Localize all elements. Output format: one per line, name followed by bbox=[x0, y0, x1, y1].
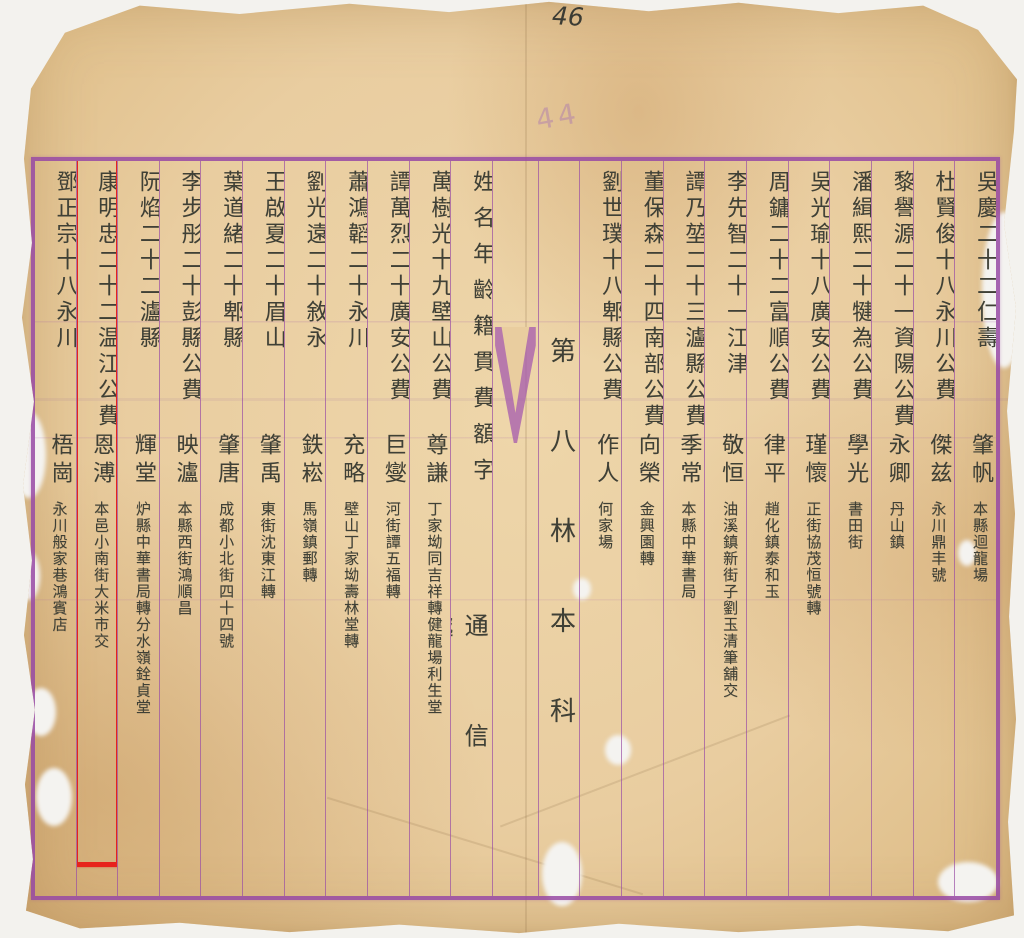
roster-column: 康明忠二十二温江公費 恩溥本邑小南街大米市交 bbox=[76, 161, 118, 896]
entry-contact-block: 永卿丹山鎮 bbox=[872, 433, 913, 894]
roster-column: 蕭鴻韜二十永川 充略壁山丁家坳壽林堂轉 bbox=[325, 161, 367, 896]
entry-address: 趙化鎮泰和玉 bbox=[763, 501, 781, 600]
roster-column: 鄧正宗十八永川 梧崗永川般家巷鴻賓店 bbox=[35, 161, 76, 896]
entry-address: 金興園轉 bbox=[638, 501, 656, 567]
entry-address: 本縣西街鴻順昌 bbox=[175, 501, 193, 617]
header-fields-label: 姓名年齡籍貫費額字 bbox=[469, 170, 492, 494]
entry-style-name: 映瀘 bbox=[172, 433, 197, 489]
entry-contact-block: 傑兹永川鼎丰號 bbox=[914, 433, 955, 894]
roster-column: 阮焰二十二瀘縣 輝堂炉縣中華書局轉分水嶺銓貞堂 bbox=[117, 161, 159, 896]
fold-fishtail-mark bbox=[495, 327, 536, 443]
entry-name-age-origin: 鄧正宗十八永川 bbox=[53, 170, 76, 352]
entry-contact-block: 肇唐成都小北街四十四號 bbox=[201, 433, 242, 894]
roster-column: 周鏞二十二富順公費 律平趙化鎮泰和玉 bbox=[746, 161, 788, 896]
roster-column: 譚乃堃二十三瀘縣公費 季常本縣中華書局 bbox=[663, 161, 705, 896]
entry-address: 東街沈東江轉 bbox=[259, 501, 277, 600]
entry-name-age-origin: 劉世璞十八郫縣公費 bbox=[598, 170, 621, 404]
entry-address: 本縣迴龍場 bbox=[971, 501, 989, 584]
entry-contact-block: 向榮金興園轉 bbox=[622, 433, 663, 894]
entry-contact-block: 肇禹東街沈東江轉 bbox=[243, 433, 284, 894]
entry-style-name: 輝堂 bbox=[131, 433, 156, 489]
entry-address: 正街協茂恒號轉 bbox=[804, 501, 822, 617]
entry-style-name: 肇唐 bbox=[214, 433, 239, 489]
entry-contact-block: 學光書田街 bbox=[830, 433, 871, 894]
entry-style-name: 季常 bbox=[676, 433, 701, 489]
entry-style-name: 學光 bbox=[843, 433, 868, 489]
center-fold-column bbox=[492, 161, 538, 896]
entry-name-age-origin: 王啟夏二十眉山 bbox=[261, 170, 284, 352]
entry-name-age-origin: 黎譽源二十一資陽公費 bbox=[890, 170, 913, 430]
handwritten-page-number: 46 bbox=[551, 1, 584, 32]
entry-style-name: 恩溥 bbox=[89, 433, 114, 489]
entry-address: 本縣中華書局 bbox=[679, 501, 697, 600]
entry-contact-block: 瑾懷正街協茂恒號轉 bbox=[789, 433, 830, 894]
entry-name-age-origin: 葉道緒二十郫縣 bbox=[219, 170, 242, 352]
entry-name-age-origin: 潘緝熙二十犍為公費 bbox=[848, 170, 871, 404]
entry-contact-block: 鉄崧馬嶺鎮郵轉 bbox=[285, 433, 326, 894]
entry-name-age-origin: 董保森二十四南部公費 bbox=[640, 170, 663, 430]
entry-contact-block: 作人何家場 bbox=[580, 433, 621, 894]
roster-column: 董保森二十四南部公費 向榮金興園轉 bbox=[621, 161, 663, 896]
entry-contact-block: 輝堂炉縣中華書局轉分水嶺銓貞堂 bbox=[118, 433, 159, 894]
entry-style-name: 梧崗 bbox=[48, 433, 73, 489]
entry-name-age-origin: 萬樹光十九壁山公費 bbox=[427, 170, 450, 404]
roster-column: 王啟夏二十眉山 肇禹東街沈東江轉 bbox=[242, 161, 284, 896]
entry-contact-block: 季常本縣中華書局 bbox=[664, 433, 705, 894]
roster-column: 李先智二十一江津 敬恒油溪鎮新街子劉玉清筆舖交 bbox=[704, 161, 746, 896]
entry-style-name: 肇禹 bbox=[256, 433, 281, 489]
roster-column: 葉道緒二十郫縣 肇唐成都小北街四十四號 bbox=[200, 161, 242, 896]
entry-address: 書田街 bbox=[846, 501, 864, 551]
entry-address: 成都小北街四十四號 bbox=[217, 501, 235, 650]
entry-style-name: 永卿 bbox=[885, 433, 910, 489]
entry-name-age-origin: 蕭鴻韜二十永川 bbox=[344, 170, 367, 352]
entry-contact-block: 律平趙化鎮泰和玉 bbox=[747, 433, 788, 894]
entry-contact-block: 映瀘本縣西街鴻順昌 bbox=[160, 433, 201, 894]
entry-address: 永川般家巷鴻賓店 bbox=[51, 501, 69, 633]
entry-contact-block: 充略壁山丁家坳壽林堂轉 bbox=[326, 433, 367, 894]
entry-style-name: 傑兹 bbox=[926, 433, 951, 489]
entry-name-age-origin: 阮焰二十二瀘縣 bbox=[136, 170, 159, 352]
entry-style-name: 作人 bbox=[593, 433, 618, 489]
entry-style-name: 律平 bbox=[760, 433, 785, 489]
entry-address: 何家場 bbox=[596, 501, 614, 551]
entry-name-age-origin: 李先智二十一江津 bbox=[723, 170, 746, 378]
entry-style-name: 尊謙 bbox=[422, 433, 447, 489]
roster-column: 劉光遠二十敘永 鉄崧馬嶺鎮郵轉 bbox=[284, 161, 326, 896]
roster-column: 吳光瑜十八廣安公費 瑾懷正街協茂恒號轉 bbox=[788, 161, 830, 896]
roster-grid: 吳慶二十二仁壽 肇帆本縣迴龍場 杜賢俊十八永川公費 傑兹永川鼎丰號 黎譽源二十一… bbox=[35, 161, 996, 896]
roster-column: 潘緝熙二十犍為公費 學光書田街 bbox=[829, 161, 871, 896]
entry-address: 炉縣中華書局轉分水嶺銓貞堂 bbox=[134, 501, 152, 716]
entry-contact-block: 巨燮河街譚五福轉 bbox=[368, 433, 409, 894]
entry-address: 油溪鎮新街子劉玉清筆舖交 bbox=[721, 501, 739, 699]
entry-name-age-origin: 周鏞二十二富順公費 bbox=[765, 170, 788, 404]
roster-column: 劉世璞十八郫縣公費 作人何家場 bbox=[579, 161, 621, 896]
entry-name-age-origin: 譚萬烈二十廣安公費 bbox=[386, 170, 409, 404]
entry-contact-block: 恩溥本邑小南街大米市交 bbox=[77, 433, 118, 894]
roster-column: 吳慶二十二仁壽 肇帆本縣迴龍場 bbox=[954, 161, 996, 896]
entry-style-name: 肇帆 bbox=[968, 433, 993, 489]
entry-contact-block: 敬恒油溪鎮新街子劉玉清筆舖交 bbox=[705, 433, 746, 894]
entry-name-age-origin: 劉光遠二十敘永 bbox=[302, 170, 325, 352]
roster-column: 黎譽源二十一資陽公費 永卿丹山鎮 bbox=[871, 161, 913, 896]
entry-address: 河街譚五福轉 bbox=[384, 501, 402, 600]
entry-name-age-origin: 康明忠二十二温江公費 bbox=[94, 170, 117, 430]
entry-address: 本邑小南街大米市交 bbox=[92, 501, 110, 650]
entry-style-name: 瑾懷 bbox=[801, 433, 826, 489]
entry-style-name: 鉄崧 bbox=[297, 433, 322, 489]
roster-column: 萬樹光十九壁山公費 尊謙丁家坳同吉祥轉健龍場利生堂 bbox=[409, 161, 451, 896]
roster-frame: 吳慶二十二仁壽 肇帆本縣迴龍場 杜賢俊十八永川公費 傑兹永川鼎丰號 黎譽源二十一… bbox=[31, 157, 1000, 900]
entry-style-name: 向榮 bbox=[635, 433, 660, 489]
section-label: 第八林本科 bbox=[545, 337, 575, 787]
header-column: 姓名年齡籍貫費額字 通信處 bbox=[450, 161, 492, 896]
entry-name-age-origin: 吳光瑜十八廣安公費 bbox=[806, 170, 829, 404]
entry-name-age-origin: 譚乃堃二十三瀘縣公費 bbox=[681, 170, 704, 430]
roster-column: 杜賢俊十八永川公費 傑兹永川鼎丰號 bbox=[913, 161, 955, 896]
roster-column: 譚萬烈二十廣安公費 巨燮河街譚五福轉 bbox=[367, 161, 409, 896]
section-label-column: 第八林本科 bbox=[538, 161, 580, 896]
entry-style-name: 充略 bbox=[339, 433, 364, 489]
entry-name-age-origin: 吳慶二十二仁壽 bbox=[973, 170, 996, 352]
entry-style-name: 巨燮 bbox=[381, 433, 406, 489]
entry-contact-block: 梧崗永川般家巷鴻賓店 bbox=[35, 433, 76, 894]
entry-address: 丁家坳同吉祥轉健龍場利生堂 bbox=[425, 501, 443, 716]
entry-address: 丹山鎮 bbox=[888, 501, 906, 551]
entry-contact-block: 肇帆本縣迴龍場 bbox=[955, 433, 996, 894]
entry-address: 永川鼎丰號 bbox=[929, 501, 947, 584]
entry-name-age-origin: 杜賢俊十八永川公費 bbox=[931, 170, 954, 404]
header-contact-label: 通信處 bbox=[451, 613, 492, 896]
fold-fishtail-notch bbox=[495, 327, 536, 443]
entry-address: 馬嶺鎮郵轉 bbox=[300, 501, 318, 584]
entry-name-age-origin: 李步彤二十彭縣公費 bbox=[177, 170, 200, 404]
entry-style-name: 敬恒 bbox=[718, 433, 743, 489]
faint-page-number: 44 bbox=[533, 96, 582, 136]
roster-column: 李步彤二十彭縣公費 映瀘本縣西街鴻順昌 bbox=[159, 161, 201, 896]
entry-contact-block: 尊謙丁家坳同吉祥轉健龍場利生堂 bbox=[410, 433, 451, 894]
entry-address: 壁山丁家坳壽林堂轉 bbox=[342, 501, 360, 650]
paper-sheet: 46 44 吳慶二十二仁壽 肇帆本縣迴龍場 杜賢俊十八永川公費 傑兹永川鼎丰號 … bbox=[20, 0, 1018, 934]
scan-canvas: 46 44 吳慶二十二仁壽 肇帆本縣迴龍場 杜賢俊十八永川公費 傑兹永川鼎丰號 … bbox=[0, 0, 1024, 938]
